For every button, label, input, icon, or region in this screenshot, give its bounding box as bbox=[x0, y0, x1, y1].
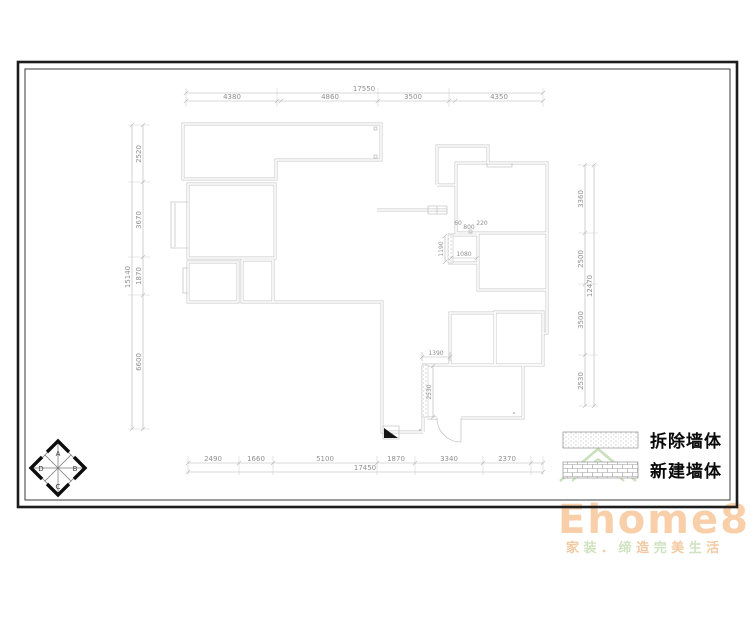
dim-int-60: 60 bbox=[454, 220, 462, 227]
dim-bottom-3: 5100 bbox=[316, 455, 334, 463]
floor-plan-canvas: 17550 4380 4860 3500 4350 17450 2490 166… bbox=[0, 0, 756, 630]
dim-left-1: 2520 bbox=[135, 145, 143, 163]
compass-rose: A B C D bbox=[31, 441, 85, 495]
compass-letter-a: A bbox=[56, 450, 61, 458]
dim-top-1: 4380 bbox=[223, 93, 241, 101]
dim-left-total: 15140 bbox=[124, 266, 132, 288]
compass-letter-d: D bbox=[38, 465, 43, 473]
dim-right-2: 2500 bbox=[577, 250, 585, 268]
dim-left-2: 3670 bbox=[135, 211, 143, 229]
dim-right-3: 3500 bbox=[577, 311, 585, 329]
dim-bottom-5: 3340 bbox=[440, 455, 458, 463]
dim-int-1190: 1190 bbox=[438, 241, 445, 256]
dim-bottom-6: 2370 bbox=[498, 455, 516, 463]
dim-bottom-2: 1660 bbox=[247, 455, 265, 463]
logo-tagline: 家装．缔造完美生活 bbox=[566, 540, 724, 556]
demolish-wall-label: 拆除墙体 bbox=[650, 431, 722, 452]
logo-brand: Ehome8 bbox=[558, 497, 750, 543]
dim-bottom-total: 17450 bbox=[354, 464, 376, 472]
dim-bottom-1: 2490 bbox=[204, 455, 222, 463]
door-swing-arc bbox=[437, 418, 461, 442]
dim-top-3: 3500 bbox=[404, 93, 422, 101]
dim-top-total: 17550 bbox=[353, 85, 375, 93]
compass-letter-c: C bbox=[56, 483, 61, 491]
dim-int-1080: 1080 bbox=[456, 251, 471, 258]
point-markers bbox=[374, 127, 515, 431]
dim-int-220: 220 bbox=[476, 220, 488, 227]
new-wall-label: 新建墙体 bbox=[650, 461, 722, 482]
compass-letter-b: B bbox=[73, 465, 78, 473]
dim-int-800: 800 bbox=[463, 224, 475, 231]
drawing-sheet: 17550 4380 4860 3500 4350 17450 2490 166… bbox=[0, 0, 756, 630]
dim-int-2530: 2530 bbox=[426, 384, 433, 399]
legend: 拆除墙体 新建墙体 bbox=[560, 431, 722, 482]
demolish-wall-swatch bbox=[563, 432, 638, 448]
dim-left-4: 6600 bbox=[135, 353, 143, 371]
dim-top-2: 4860 bbox=[321, 93, 339, 101]
dim-right-total: 12470 bbox=[586, 275, 594, 297]
dimension-annotations: 17550 4380 4860 3500 4350 17450 2490 166… bbox=[124, 85, 598, 475]
dim-bottom-4: 1870 bbox=[387, 455, 405, 463]
dim-top-4: 4350 bbox=[490, 93, 508, 101]
dim-right-4: 2530 bbox=[577, 372, 585, 390]
dim-int-1390: 1390 bbox=[428, 350, 443, 357]
new-wall-swatch bbox=[563, 462, 638, 478]
dim-left-3: 1870 bbox=[135, 267, 143, 285]
floor-plan bbox=[171, 124, 547, 442]
dim-right-1: 3360 bbox=[577, 190, 585, 208]
